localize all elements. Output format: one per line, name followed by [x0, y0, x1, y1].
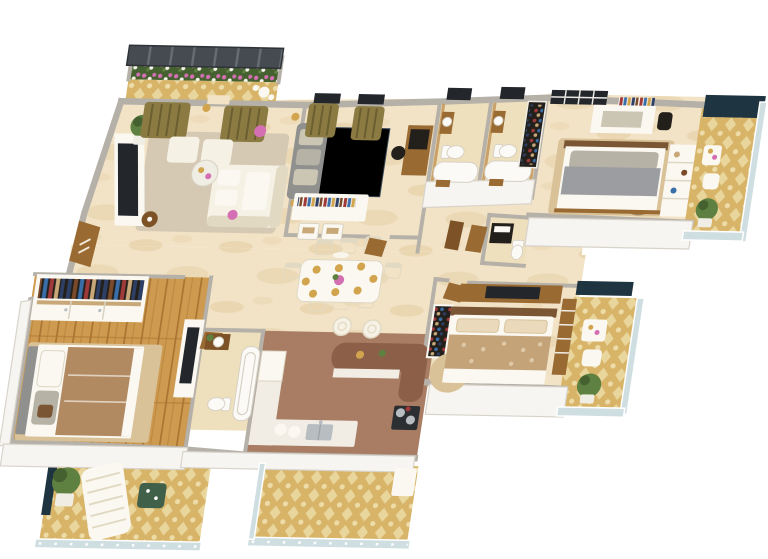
sofa-cushion — [214, 189, 238, 205]
bedroom2-south-wall-face — [525, 218, 693, 249]
sofa-back — [206, 215, 272, 227]
master-bed — [15, 344, 145, 438]
bedroom3-balcony-privacy-panel — [576, 281, 634, 296]
bath2-window — [500, 87, 526, 99]
sofa-cushion — [295, 149, 321, 165]
bedroom2-skylight-window — [550, 90, 608, 105]
utility-balcony — [391, 468, 417, 496]
tv-screen — [485, 286, 541, 299]
floor-plan-canvas — [0, 0, 768, 559]
book-shelf — [618, 97, 655, 106]
balcony-door-threshold — [207, 95, 230, 104]
drawer-front — [302, 227, 315, 233]
pergola-roof — [127, 45, 284, 68]
green-table — [136, 483, 167, 509]
gray-double-bed — [554, 140, 671, 214]
desk-items — [601, 111, 643, 128]
media-console — [291, 193, 369, 221]
l-shaped-sofa — [206, 164, 289, 227]
balcony-chair — [702, 173, 720, 189]
accent-pillow — [37, 405, 54, 418]
toilet — [207, 397, 231, 410]
balcony-chair — [581, 349, 603, 366]
desk-chair — [657, 112, 674, 130]
drawer-front — [326, 228, 339, 234]
pillow — [456, 319, 500, 333]
sink-counter — [262, 419, 358, 447]
bedroom3-balcony-railing — [556, 407, 624, 417]
hanging-clothes — [38, 278, 145, 300]
ottoman — [166, 136, 200, 163]
balcony-desk — [581, 319, 608, 341]
pillow — [36, 350, 65, 386]
desk-top-items — [408, 129, 430, 149]
bath1-door — [435, 180, 450, 187]
family-window-1 — [314, 93, 342, 104]
towels — [494, 226, 511, 232]
master-south-wall-face — [0, 444, 187, 470]
bathtub — [432, 162, 479, 183]
bath2-door — [489, 179, 504, 186]
double-bed — [440, 306, 557, 384]
utility-unit — [391, 468, 417, 496]
living-balcony-roof — [127, 45, 284, 68]
cafe-table — [701, 145, 722, 165]
folded-sheet — [559, 194, 657, 210]
toilet — [441, 145, 465, 158]
pillow — [504, 320, 548, 334]
bath1-window — [446, 88, 472, 100]
book-row — [297, 197, 356, 207]
patterned-duvet — [444, 335, 551, 373]
open-wardrobe — [30, 274, 149, 322]
family-window-2 — [358, 94, 386, 105]
toilet — [493, 144, 517, 157]
plant-pot — [579, 394, 594, 403]
dark-vanity — [489, 223, 514, 243]
folded-sheet — [442, 369, 546, 385]
bedroom2-balcony-railing — [682, 231, 743, 241]
utility-balcony-floor — [250, 463, 419, 546]
duvet — [560, 166, 661, 198]
gas-cooktop — [391, 406, 421, 431]
plant-pot — [54, 493, 74, 506]
sofa-cushion — [292, 169, 318, 185]
floor-plan-image — [0, 0, 768, 559]
bedroom2-balcony-privacy-panel — [703, 95, 766, 118]
sofa-cushion — [217, 169, 241, 185]
refrigerator — [258, 351, 287, 381]
island-face — [333, 368, 400, 378]
plant-pot — [697, 218, 712, 227]
